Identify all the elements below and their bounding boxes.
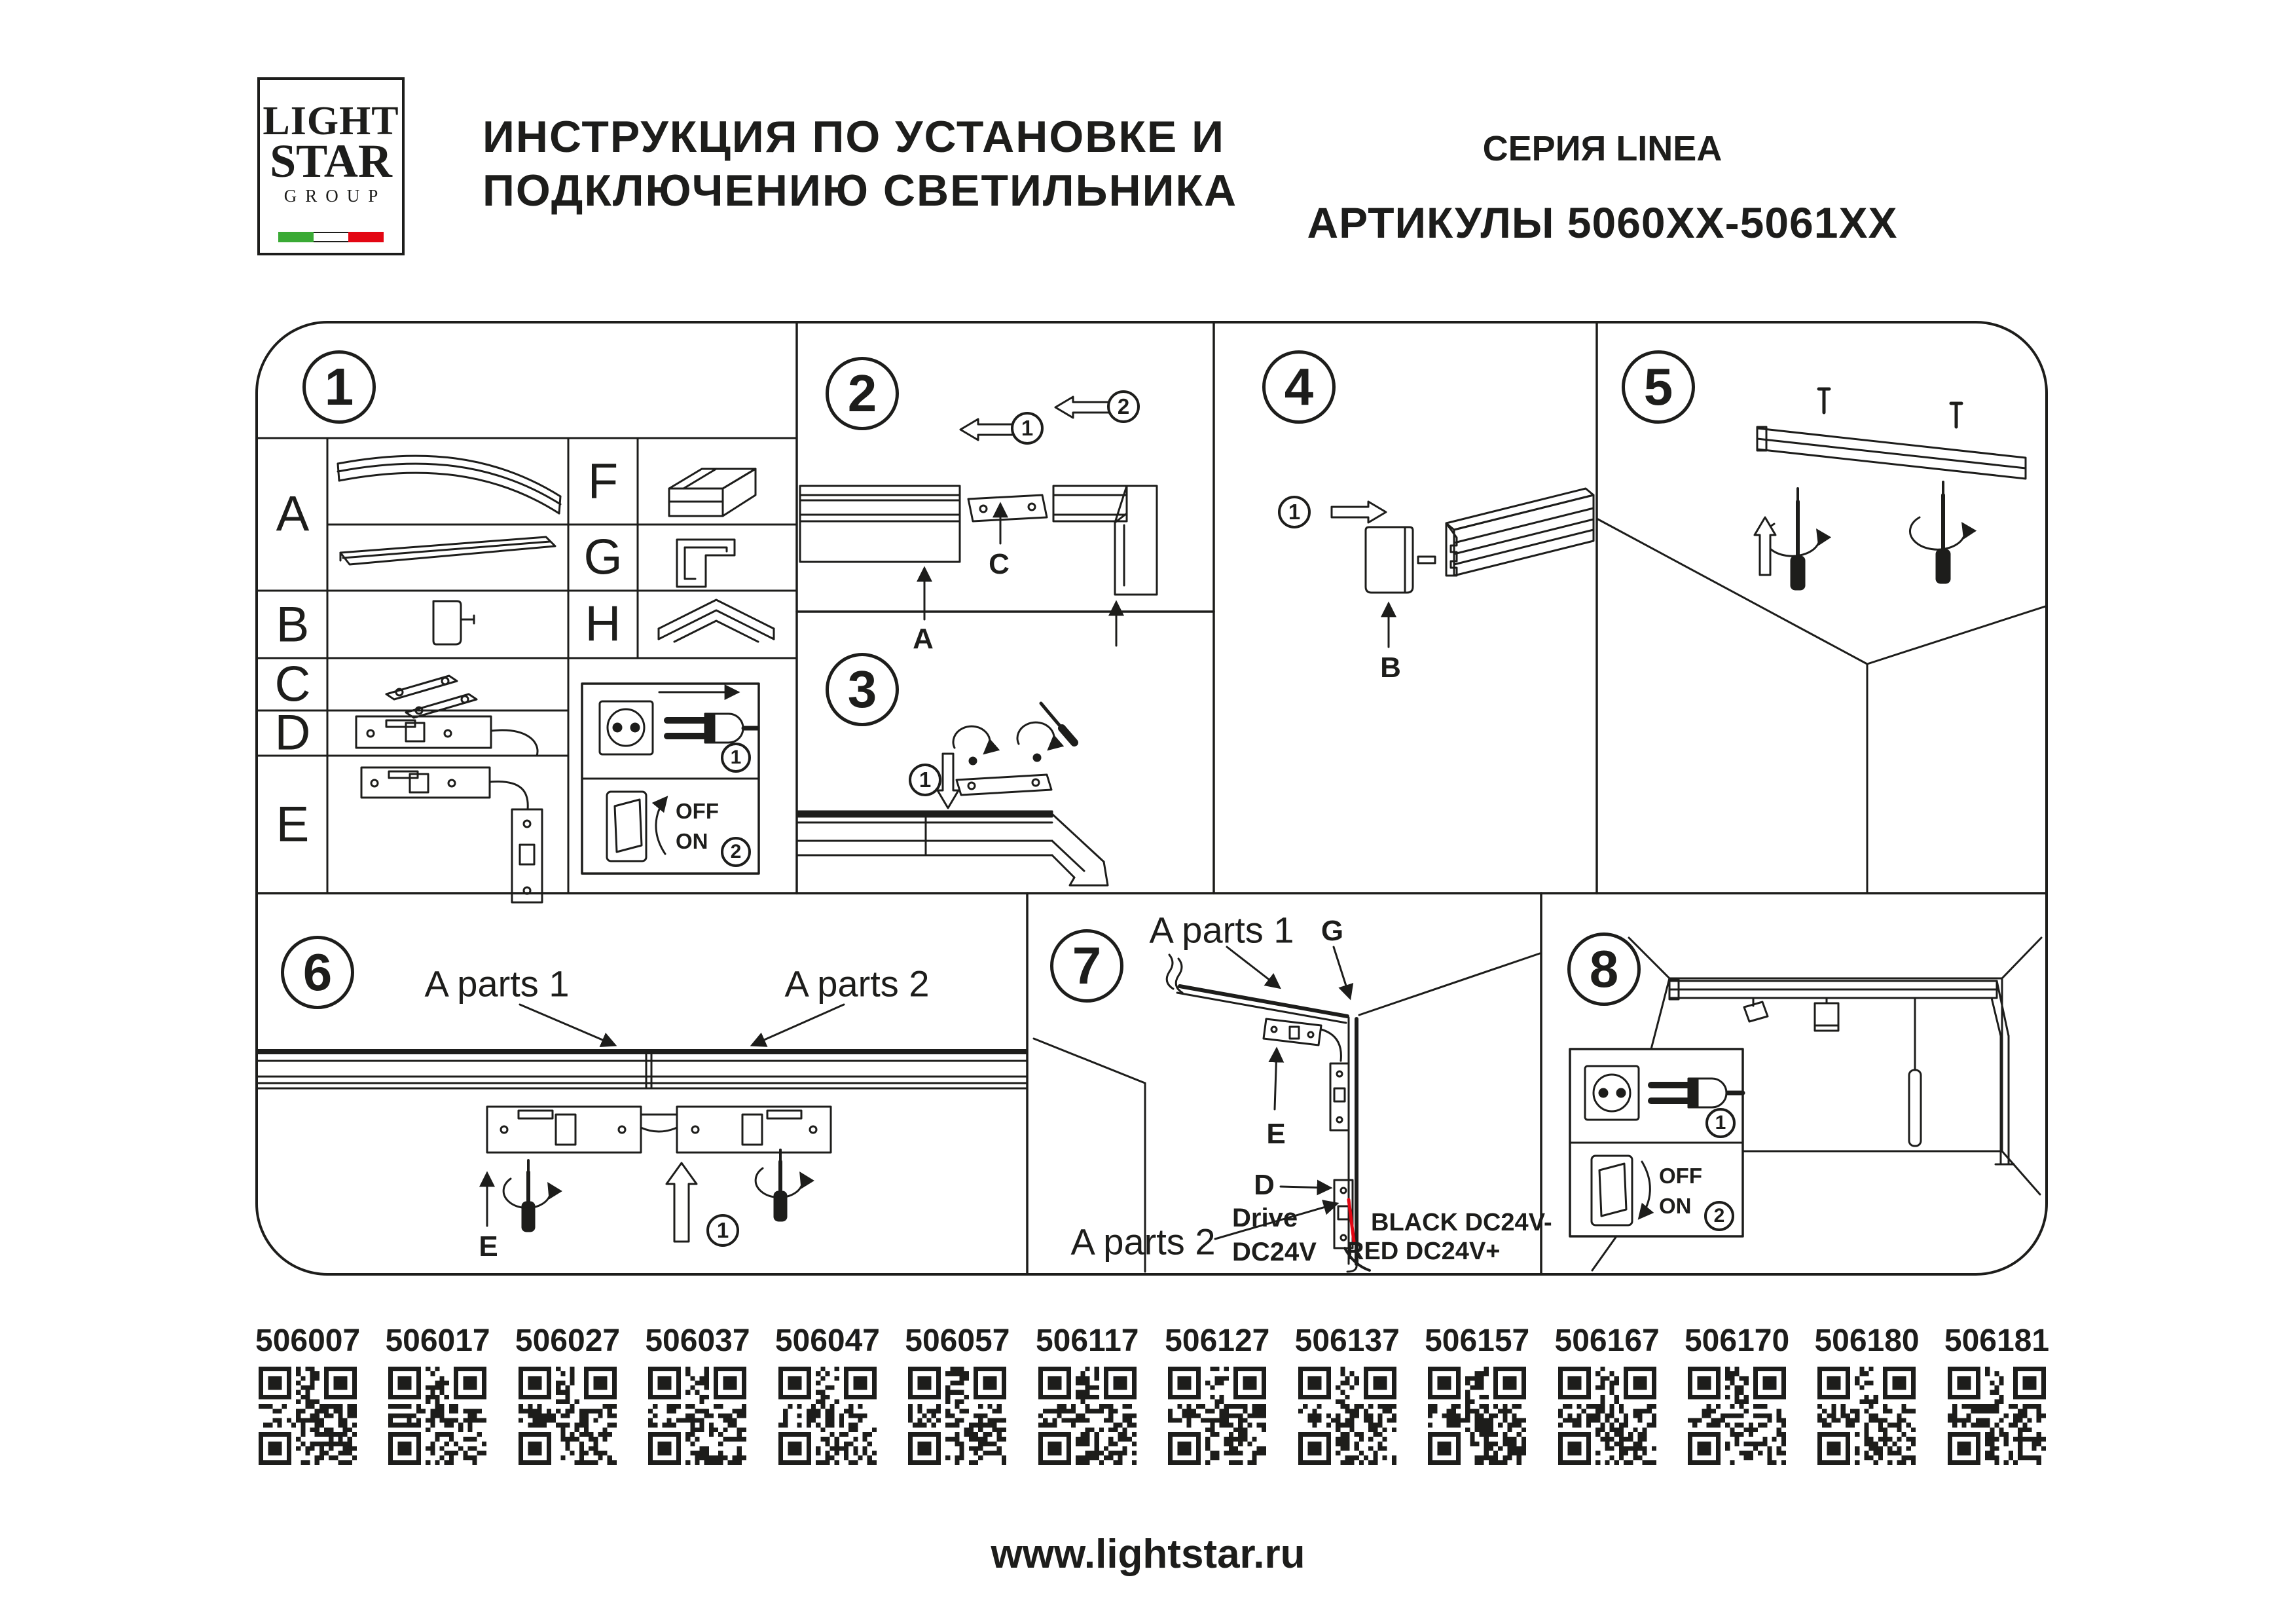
- legend8-step-2-marker: 2: [1704, 1201, 1734, 1231]
- instruction-diagram: 1 2 3 4 5 6 7 8 A B C D E F G H OFF ON 1…: [255, 321, 2048, 1276]
- mid-plate-drawing: [1330, 1063, 1349, 1130]
- step-8-number: 8: [1567, 932, 1641, 1006]
- corner-track-drawing: [1052, 814, 1108, 885]
- corner-piece-drawing: [1053, 486, 1157, 595]
- legend8-on-label: ON: [1659, 1194, 1692, 1219]
- part-label-h: H: [585, 596, 621, 653]
- qr-item: 506157: [1425, 1323, 1529, 1468]
- qr-code-image: [519, 1367, 617, 1465]
- part-d-driver-drawing: [356, 716, 538, 756]
- qr-article-number: 506047: [775, 1323, 880, 1359]
- qr-article-number: 506180: [1814, 1323, 1919, 1359]
- legend-step-2-marker: 2: [721, 837, 751, 867]
- title-line-2: ПОДКЛЮЧЕНИЮ СВЕТИЛЬНИКА: [483, 164, 1237, 217]
- white-arrow-right-icon: [1332, 502, 1386, 523]
- legend8-off-label: OFF: [1659, 1164, 1702, 1189]
- qr-code-image: [1298, 1367, 1396, 1465]
- part-b-end-cap-drawing: [433, 601, 474, 644]
- qr-code-image: [1817, 1367, 1916, 1465]
- step-2-number: 2: [826, 357, 899, 430]
- italian-flag-icon: [278, 232, 384, 242]
- step4-label-b: B: [1380, 652, 1401, 684]
- qr-article-number: 506117: [1035, 1323, 1140, 1359]
- spot-light-drawing: [1744, 998, 1768, 1022]
- white-arrow-up-icon: [666, 1163, 697, 1242]
- qr-item: 506137: [1295, 1323, 1400, 1468]
- qr-code-image: [1428, 1367, 1526, 1465]
- qr-article-number: 506017: [385, 1323, 490, 1359]
- qr-article-number: 506157: [1425, 1323, 1529, 1359]
- screwdriver-icon: [503, 1160, 551, 1231]
- step-5-number: 5: [1622, 350, 1695, 424]
- connector-e-drawing: [1264, 1019, 1341, 1061]
- step2-label-c: C: [989, 548, 1010, 581]
- break-squiggle: [1167, 955, 1173, 989]
- qr-item: 506007: [255, 1323, 360, 1468]
- qr-code-image: [388, 1367, 486, 1465]
- pendant-light-drawing: [1909, 998, 1921, 1146]
- website-link: www.lightstar.ru: [991, 1532, 1305, 1577]
- logo-word-star: STAR: [260, 140, 402, 182]
- qr-article-number: 506170: [1685, 1323, 1789, 1359]
- qr-code-image: [1168, 1367, 1266, 1465]
- qr-item: 506017: [385, 1323, 490, 1468]
- qr-row: 5060075060175060275060375060475060575061…: [255, 1323, 2049, 1468]
- qr-item: 506027: [515, 1323, 620, 1468]
- part-label-d: D: [275, 705, 311, 762]
- step6-a-parts-1: A parts 1: [424, 963, 569, 1005]
- step7-red-wire-label: RED DC24V+: [1346, 1238, 1500, 1266]
- logo-word-group: GROUP: [260, 186, 402, 206]
- step7-a-parts-2: A parts 2: [1070, 1221, 1215, 1263]
- qr-item: 506127: [1165, 1323, 1269, 1468]
- qr-article-number: 506057: [905, 1323, 1010, 1359]
- step7-label-g: G: [1321, 915, 1343, 948]
- step7-drive-line2: DC24V: [1232, 1238, 1317, 1267]
- qr-code-image: [778, 1367, 877, 1465]
- qr-item: 506170: [1685, 1323, 1789, 1468]
- qr-code-image: [1688, 1367, 1786, 1465]
- part-label-g: G: [583, 529, 622, 586]
- part-label-e: E: [276, 796, 310, 853]
- legend-step-1-marker: 1: [721, 743, 751, 773]
- series-block: СЕРИЯ LINEA АРТИКУЛЫ 5060XX-5061XX: [1296, 128, 1908, 248]
- diagram-linework: [258, 323, 2045, 1273]
- qr-article-number: 506127: [1165, 1323, 1269, 1359]
- ceiling-track-drawing: [1757, 427, 2026, 479]
- step2-marker-2: 2: [1107, 390, 1140, 423]
- part-label-f: F: [588, 453, 618, 510]
- series-label: СЕРИЯ LINEA: [1296, 128, 1908, 169]
- step4-marker-1: 1: [1278, 496, 1311, 528]
- step8-drawing: [1570, 938, 2041, 1270]
- part-h-corner-drawing: [659, 600, 774, 642]
- instruction-sheet: LIGHT STAR GROUP ИНСТРУКЦИЯ ПО УСТАНОВКЕ…: [0, 0, 2296, 1624]
- step-6-number: 6: [281, 936, 354, 1009]
- qr-article-number: 506037: [645, 1323, 750, 1359]
- part-g-connector-drawing: [677, 540, 735, 587]
- qr-article-number: 506137: [1295, 1323, 1400, 1359]
- qr-item: 506037: [645, 1323, 750, 1468]
- part-a-curved-track-drawing: [338, 456, 560, 513]
- step6-drawing: [258, 1005, 1027, 1242]
- screwdriver-icon: [1041, 703, 1074, 743]
- qr-article-number: 506181: [1944, 1323, 2049, 1359]
- step7-a-parts-1: A parts 1: [1149, 909, 1294, 951]
- qr-code-image: [908, 1367, 1006, 1465]
- step-7-number: 7: [1050, 929, 1123, 1003]
- step6-label-e: E: [479, 1230, 498, 1263]
- step7-drive-line1: Drive: [1232, 1204, 1298, 1233]
- step6-a-parts-2: A parts 2: [784, 963, 929, 1005]
- step2-drawing: [800, 397, 1157, 646]
- part-e-corner-driver-drawing: [361, 767, 542, 902]
- qr-code-image: [1038, 1367, 1137, 1465]
- step-3-number: 3: [826, 653, 899, 726]
- qr-item: 506057: [905, 1323, 1010, 1468]
- step2-label-a: A: [913, 623, 934, 655]
- qr-item: 506047: [775, 1323, 880, 1468]
- step3-drawing: [797, 703, 1108, 885]
- lightstar-logo: LIGHT STAR GROUP: [257, 77, 405, 255]
- title-line-1: ИНСТРУКЦИЯ ПО УСТАНОВКЕ И: [483, 110, 1237, 164]
- qr-article-number: 506027: [515, 1323, 620, 1359]
- part-label-b: B: [276, 597, 310, 654]
- screwdriver-icon: [1764, 489, 1819, 589]
- qr-code-image: [259, 1367, 357, 1465]
- screwdriver-icon: [756, 1150, 803, 1221]
- qr-item: 506180: [1814, 1323, 1919, 1468]
- track-profile-drawing: [1446, 489, 1594, 576]
- step-4-number: 4: [1262, 350, 1336, 424]
- legend-on-label: ON: [676, 829, 708, 854]
- screw-icon: [1819, 389, 1961, 427]
- qr-code-image: [648, 1367, 746, 1465]
- legend8-step-1-marker: 1: [1705, 1108, 1736, 1138]
- qr-item: 506117: [1035, 1323, 1140, 1468]
- legend-off-label: OFF: [676, 799, 719, 824]
- qr-code-image: [1948, 1367, 2046, 1465]
- part-a-straight-track-drawing: [340, 537, 555, 564]
- qr-article-number: 506007: [255, 1323, 360, 1359]
- white-arrow-left-icon: [1055, 397, 1111, 418]
- qr-item: 506181: [1944, 1323, 2049, 1468]
- step7-label-d: D: [1254, 1169, 1275, 1202]
- step7-label-e: E: [1266, 1118, 1285, 1151]
- step-1-number: 1: [302, 350, 376, 424]
- surface-light-drawing: [1815, 998, 1838, 1031]
- power-legend-box: [1570, 1049, 1743, 1270]
- step5-drawing: [1597, 389, 2045, 892]
- step7-black-wire-label: BLACK DC24V-: [1371, 1209, 1552, 1237]
- articles-label: АРТИКУЛЫ 5060XX-5061XX: [1296, 198, 1908, 248]
- part-label-a: A: [276, 486, 310, 543]
- qr-item: 506167: [1555, 1323, 1660, 1468]
- step4-drawing: [1332, 489, 1594, 647]
- step2-marker-1: 1: [1011, 412, 1044, 445]
- screwdriver-icon: [1910, 482, 1965, 583]
- end-cap-b-drawing: [1366, 527, 1435, 593]
- footer: www.lightstar.ru: [0, 1531, 2296, 1578]
- white-arrow-left-icon: [960, 419, 1016, 440]
- page-title: ИНСТРУКЦИЯ ПО УСТАНОВКЕ И ПОДКЛЮЧЕНИЮ СВ…: [483, 110, 1237, 217]
- part-f-connector-drawing: [669, 469, 756, 516]
- qr-code-image: [1558, 1367, 1656, 1465]
- connector-e-drawing: [487, 1107, 831, 1153]
- qr-article-number: 506167: [1555, 1323, 1660, 1359]
- step3-marker-1: 1: [909, 764, 941, 796]
- step6-marker-1: 1: [706, 1214, 739, 1247]
